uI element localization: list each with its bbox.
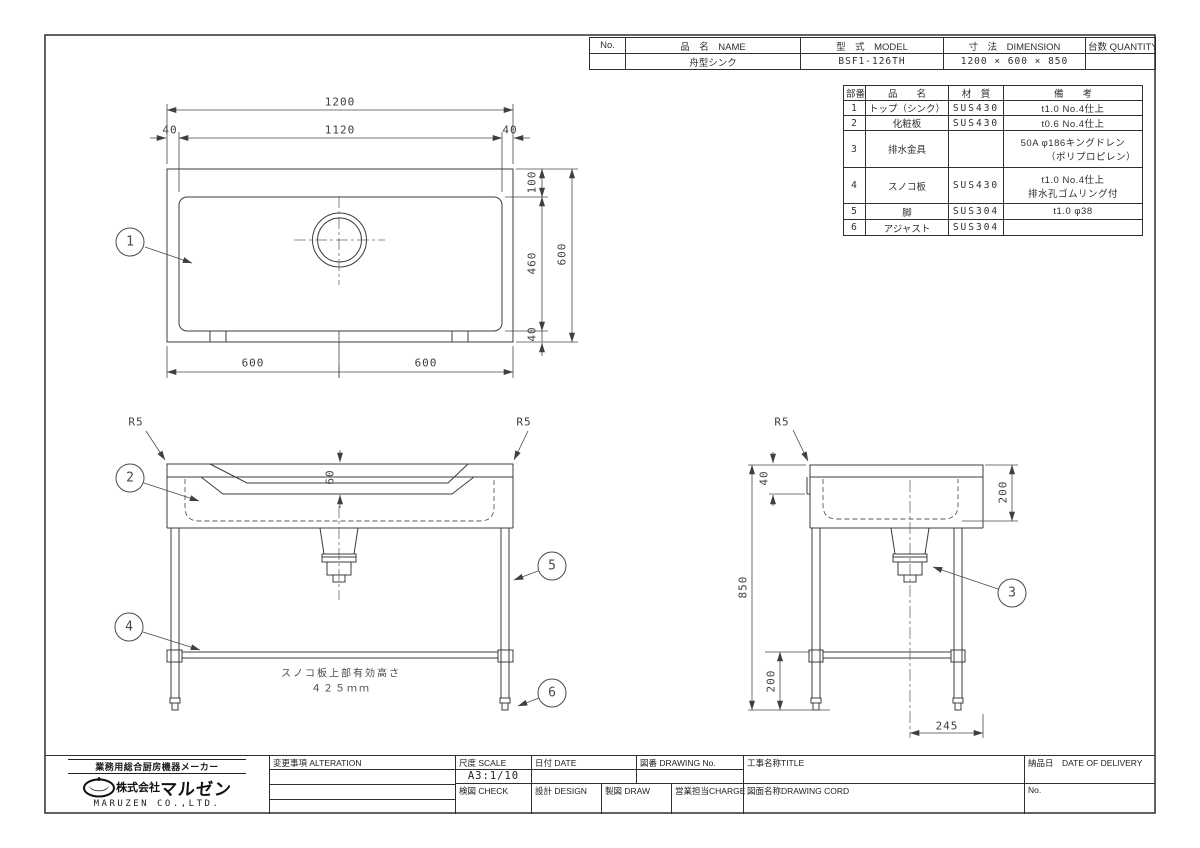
part-note-line2: 排水孔ゴムリング付 (1006, 186, 1140, 200)
company-cell: 業務用総合厨房機器メーカー 株式会社 マルゼン MARUZEN CO.,LTD. (45, 756, 270, 814)
no-cell: No. (1025, 784, 1155, 814)
drawing-sheet: 1200 1120 40 40 600 600 100 460 40 600 6… (0, 0, 1200, 848)
part-name: スノコ板 (866, 168, 949, 204)
part-note: 50A φ186キングドレン （ポリプロピレン） (1004, 131, 1143, 168)
side-dim-height: 850 (737, 576, 750, 599)
part-no: 2 (844, 116, 866, 131)
company-name-en: MARUZEN CO.,LTD. (94, 799, 221, 809)
part-no: 4 (844, 168, 866, 204)
part-name: 化粧板 (866, 116, 949, 131)
delivery-cell: 納品日 DATE OF DELIVERY (1025, 756, 1155, 784)
check-cell: 検図 CHECK (456, 784, 532, 814)
part-name: 脚 (866, 204, 949, 220)
plan-dim-half-right: 600 (415, 357, 438, 370)
part-material (949, 131, 1004, 168)
delivery-label: 納品日 DATE OF DELIVERY (1025, 756, 1155, 770)
draw-cell: 製図 DRAW (602, 784, 672, 814)
plan-dim-half-left: 600 (242, 357, 265, 370)
part-material: SUS430 (949, 168, 1004, 204)
side-view-linework (748, 430, 1018, 738)
plan-dim-back: 100 (526, 171, 539, 194)
item-name: 舟型シンク (626, 54, 801, 70)
date-label: 日付 DATE (532, 756, 636, 770)
part-note: t0.6 No.4仕上 (1004, 116, 1143, 131)
maruzen-logo-icon (82, 776, 116, 798)
part-note: t1.0 φ38 (1004, 204, 1143, 220)
plan-dim-bowl: 460 (526, 252, 539, 275)
part-material: SUS430 (949, 101, 1004, 116)
item-model: BSF1-126TH (801, 54, 944, 70)
charge-label: 営業担当CHARGE (672, 784, 743, 798)
draw-label: 製図 DRAW (602, 784, 671, 798)
item-dimension: 1200 × 600 × 850 (944, 54, 1086, 70)
shelf-clearance-note-line1: スノコ板上部有効高さ (281, 665, 401, 680)
design-cell: 設計 DESIGN (532, 784, 602, 814)
plan-dim-front: 40 (526, 326, 539, 341)
balloon-4-shelf: 4 (115, 613, 144, 642)
plan-dim-overall-width: 1200 (325, 96, 356, 109)
header-row: 舟型シンク BSF1-126TH 1200 × 600 × 850 (590, 54, 1156, 70)
plan-view-linework (145, 104, 578, 378)
item-no (590, 54, 626, 70)
alteration-row-empty (270, 800, 455, 814)
header-col-dimension: 寸 法 DIMENSION (944, 38, 1086, 54)
alteration-label: 変更事項 ALTERATION (270, 756, 455, 770)
part-no: 3 (844, 131, 866, 168)
plan-dim-depth: 600 (556, 243, 569, 266)
parts-row: 1 トップ（シンク） SUS430 t1.0 No.4仕上 (844, 101, 1143, 116)
item-quantity (1086, 54, 1156, 70)
title-cell: 工事名称TITLE (744, 756, 1025, 784)
parts-row: 2 化粧板 SUS430 t0.6 No.4仕上 (844, 116, 1143, 131)
part-no: 1 (844, 101, 866, 116)
part-no: 6 (844, 220, 866, 236)
part-note (1004, 220, 1143, 236)
front-bowl-hidden-line (185, 479, 494, 521)
part-name: トップ（シンク） (866, 101, 949, 116)
part-no: 5 (844, 204, 866, 220)
part-note: t1.0 No.4仕上 (1004, 101, 1143, 116)
part-material: SUS304 (949, 204, 1004, 220)
part-note-line1: 50A φ186キングドレン (1006, 135, 1140, 149)
part-material: SUS430 (949, 116, 1004, 131)
header-col-quantity: 台数 QUANTITY (1086, 38, 1156, 54)
title-block: 業務用総合厨房機器メーカー 株式会社 マルゼン MARUZEN CO.,LTD.… (45, 755, 1155, 813)
side-r5-label: R5 (774, 416, 789, 429)
check-label: 検図 CHECK (456, 784, 531, 798)
side-dim-lip: 40 (758, 470, 771, 485)
company-prefix: 株式会社 (116, 779, 160, 795)
part-note: t1.0 No.4仕上 排水孔ゴムリング付 (1004, 168, 1143, 204)
header-col-name: 品 名 NAME (626, 38, 801, 54)
parts-col-no: 部番 (844, 86, 866, 101)
alteration-row-empty (270, 770, 455, 785)
scale-cell: 尺度 SCALE A3:1/10 (456, 756, 532, 784)
header-table: No. 品 名 NAME 型 式 MODEL 寸 法 DIMENSION 台数 … (589, 37, 1156, 70)
alteration-row-empty (270, 785, 455, 800)
part-note-line1: t1.0 No.4仕上 (1006, 172, 1140, 186)
parts-row: 4 スノコ板 SUS430 t1.0 No.4仕上 排水孔ゴムリング付 (844, 168, 1143, 204)
company-tagline: 業務用総合厨房機器メーカー (68, 759, 246, 774)
scale-label: 尺度 SCALE (456, 756, 531, 770)
front-dim-rim: 60 (324, 469, 337, 484)
balloon-5-leg: 5 (538, 552, 567, 581)
part-name: アジャスト (866, 220, 949, 236)
parts-col-note: 備 考 (1004, 86, 1143, 101)
side-top-edge (810, 465, 983, 477)
company-name: マルゼン (159, 775, 233, 800)
header-col-no: No. (590, 38, 626, 54)
side-bowl-hidden-line (823, 479, 958, 519)
header-col-model: 型 式 MODEL (801, 38, 944, 54)
scale-value: A3:1/10 (456, 770, 531, 782)
title-label: 工事名称TITLE (744, 756, 1024, 770)
front-r5-left-label: R5 (128, 416, 143, 429)
balloon-2-panel: 2 (116, 464, 145, 493)
date-cell: 日付 DATE (532, 756, 637, 784)
part-material: SUS304 (949, 220, 1004, 236)
parts-col-material: 材 質 (949, 86, 1004, 101)
plan-dim-edge-right: 40 (502, 124, 517, 137)
part-note-line2: （ポリプロピレン） (1006, 149, 1140, 163)
drawing-cord-label: 図面名称DRAWING CORD (744, 784, 1024, 798)
alteration-cell: 変更事項 ALTERATION (270, 756, 456, 814)
design-label: 設計 DESIGN (532, 784, 601, 798)
no-label: No. (1025, 784, 1155, 796)
side-dim-drain-offset: 245 (936, 720, 959, 733)
plan-dim-edge-left: 40 (162, 124, 177, 137)
side-dim-bowl-depth: 200 (997, 481, 1010, 504)
parts-row: 3 排水金具 50A φ186キングドレン （ポリプロピレン） (844, 131, 1143, 168)
parts-col-name: 品 名 (866, 86, 949, 101)
front-r5-right-label: R5 (516, 416, 531, 429)
drawing-cord-cell: 図面名称DRAWING CORD (744, 784, 1025, 814)
charge-cell: 営業担当CHARGE (672, 784, 744, 814)
plan-bowl-outline (179, 197, 502, 331)
balloon-1-top: 1 (116, 228, 145, 257)
parts-row: 6 アジャスト SUS304 (844, 220, 1143, 236)
balloon-3-drain: 3 (998, 579, 1027, 608)
balloon-6-adjuster: 6 (538, 679, 567, 708)
side-dim-shelf-height: 200 (765, 670, 778, 693)
part-name: 排水金具 (866, 131, 949, 168)
shelf-clearance-note-line2: ４２５ｍｍ (311, 680, 371, 695)
drawing-no-cell: 図番 DRAWING No. (637, 756, 744, 784)
parts-row: 5 脚 SUS304 t1.0 φ38 (844, 204, 1143, 220)
drawing-no-label: 図番 DRAWING No. (637, 756, 743, 770)
plan-sink-outline (167, 169, 513, 342)
parts-table: 部番 品 名 材 質 備 考 1 トップ（シンク） SUS430 t1.0 No… (843, 85, 1143, 236)
plan-dim-inner-width: 1120 (325, 124, 356, 137)
